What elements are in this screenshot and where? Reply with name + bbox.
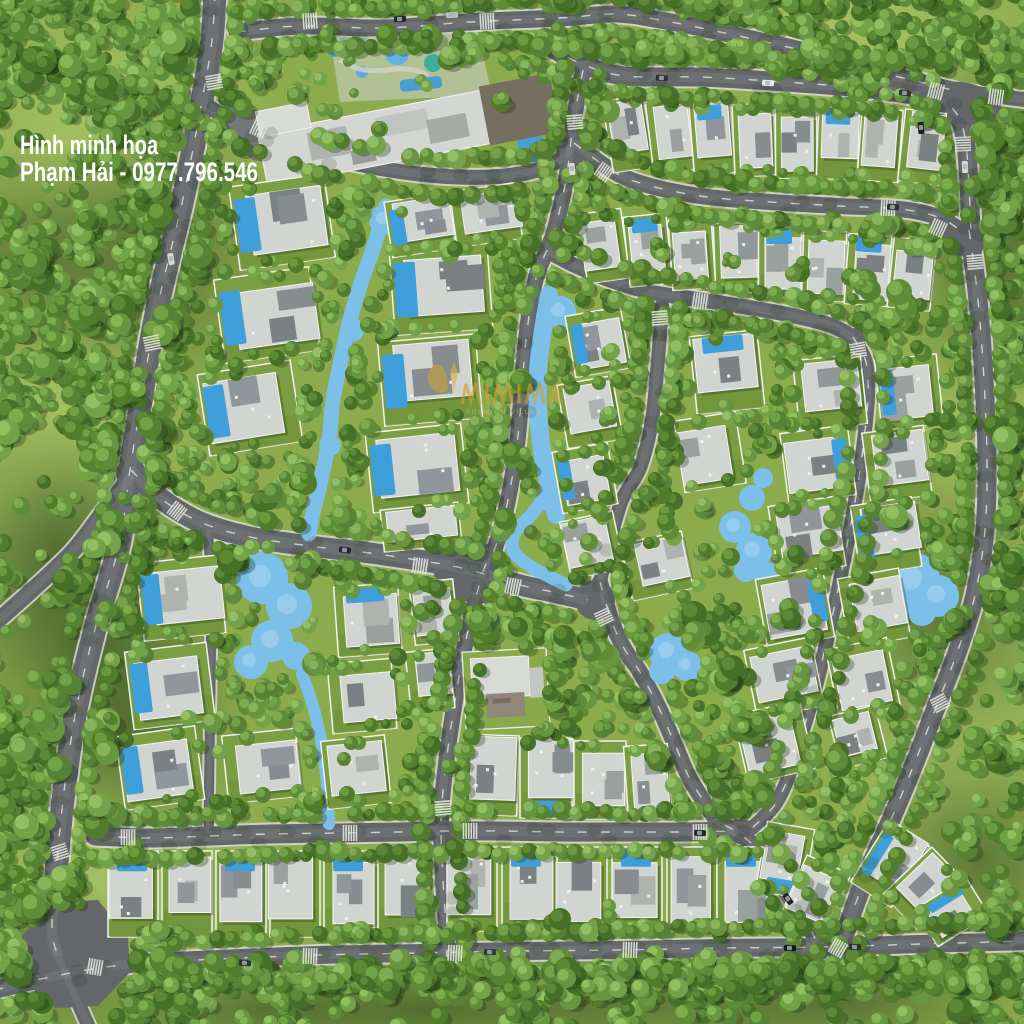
svg-text:Hình minh họa: Hình minh họa (20, 130, 159, 160)
svg-text:Phạm Hải - 0977.796.546: Phạm Hải - 0977.796.546 (20, 157, 258, 187)
svg-text:PREMIUM VILLAS: PREMIUM VILLAS (466, 409, 542, 416)
